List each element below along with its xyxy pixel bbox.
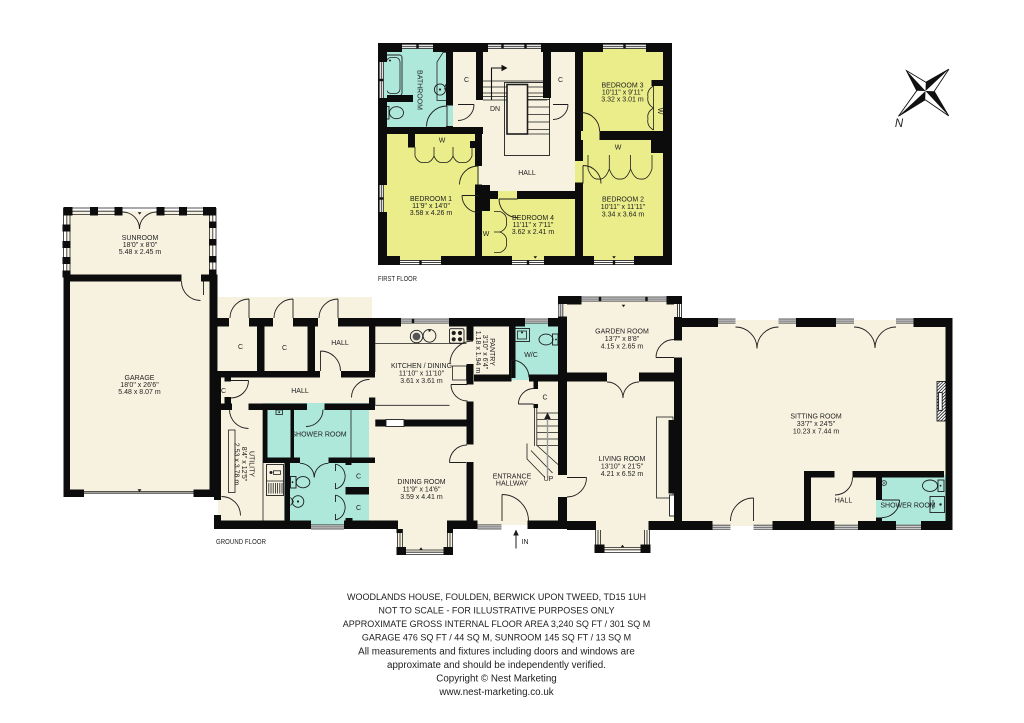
- svg-text:W: W: [656, 108, 663, 115]
- svg-text:W: W: [439, 138, 446, 145]
- svg-text:W: W: [615, 145, 622, 152]
- svg-text:GROUND FLOOR: GROUND FLOOR: [216, 537, 266, 546]
- svg-text:13'7" x 8'8": 13'7" x 8'8": [605, 336, 640, 343]
- svg-text:13'10" x 21'5": 13'10" x 21'5": [601, 464, 644, 471]
- svg-text:DN: DN: [490, 106, 500, 113]
- svg-text:W: W: [483, 231, 490, 238]
- svg-text:C: C: [464, 77, 469, 84]
- svg-text:3.34 x 3.64 m: 3.34 x 3.64 m: [602, 212, 645, 219]
- svg-text:3'10" x 6'4": 3'10" x 6'4": [481, 335, 488, 370]
- svg-text:Copyright © Nest Marketing: Copyright © Nest Marketing: [436, 674, 556, 685]
- svg-text:GARDEN ROOM: GARDEN ROOM: [595, 329, 649, 336]
- svg-text:C: C: [356, 505, 361, 512]
- svg-text:KITCHEN / DINING: KITCHEN / DINING: [391, 363, 452, 370]
- svg-text:8'4" x 12'5": 8'4" x 12'5": [240, 447, 247, 482]
- svg-text:FIRST FLOOR: FIRST FLOOR: [378, 274, 417, 283]
- svg-text:NOT TO SCALE - FOR ILLUSTRATIV: NOT TO SCALE - FOR ILLUSTRATIVE PURPOSES…: [378, 606, 614, 616]
- svg-text:SUNROOM: SUNROOM: [122, 235, 159, 242]
- svg-text:5.48 x 8.07 m: 5.48 x 8.07 m: [118, 389, 161, 396]
- svg-text:WOODLANDS HOUSE, FOULDEN, BERW: WOODLANDS HOUSE, FOULDEN, BERWICK UPON T…: [347, 592, 646, 602]
- svg-text:HALL: HALL: [518, 170, 536, 177]
- svg-text:10'11" x 9'11": 10'11" x 9'11": [602, 90, 644, 97]
- svg-text:18'0" x 8'0": 18'0" x 8'0": [123, 242, 158, 249]
- svg-text:3.59 x 4.41 m: 3.59 x 4.41 m: [400, 494, 443, 501]
- svg-text:2.53 x 3.78 m: 2.53 x 3.78 m: [233, 443, 240, 486]
- svg-text:SHOWER ROOM: SHOWER ROOM: [880, 503, 935, 510]
- svg-text:www.nest-marketing.co.uk: www.nest-marketing.co.uk: [438, 687, 553, 698]
- svg-text:3.32 x 3.01 m: 3.32 x 3.01 m: [601, 97, 644, 104]
- svg-text:LIVING ROOM: LIVING ROOM: [599, 456, 646, 463]
- svg-text:N: N: [895, 118, 904, 130]
- svg-text:SHOWER ROOM: SHOWER ROOM: [291, 432, 346, 439]
- svg-text:HALL: HALL: [291, 388, 309, 395]
- svg-text:BATHROOM: BATHROOM: [416, 70, 423, 110]
- svg-text:C: C: [221, 388, 226, 395]
- svg-text:UTILITY: UTILITY: [248, 451, 255, 477]
- svg-text:BEDROOM 4: BEDROOM 4: [512, 215, 554, 222]
- svg-text:BEDROOM 1: BEDROOM 1: [410, 196, 452, 203]
- svg-text:C: C: [282, 345, 287, 352]
- svg-text:UP: UP: [544, 476, 554, 483]
- svg-text:W/C: W/C: [524, 352, 538, 359]
- svg-text:4.21 x 6.52 m: 4.21 x 6.52 m: [601, 471, 644, 478]
- svg-text:HALL: HALL: [331, 340, 349, 347]
- svg-text:11'9" x 14'0": 11'9" x 14'0": [412, 203, 450, 210]
- svg-text:C: C: [542, 395, 547, 402]
- svg-text:approximate and should be inde: approximate and should be independently …: [387, 660, 606, 671]
- svg-text:3.62 x 2.41 m: 3.62 x 2.41 m: [512, 229, 555, 236]
- svg-text:BEDROOM 3: BEDROOM 3: [601, 83, 643, 90]
- svg-text:HALL: HALL: [835, 498, 853, 505]
- svg-text:PANTRY: PANTRY: [488, 338, 495, 366]
- svg-text:11'9" x 14'6": 11'9" x 14'6": [403, 487, 441, 494]
- svg-text:APPROXIMATE GROSS INTERNAL FLO: APPROXIMATE GROSS INTERNAL FLOOR AREA 3,…: [343, 619, 650, 629]
- svg-text:10'11" x 11'11": 10'11" x 11'11": [601, 204, 646, 211]
- svg-text:DINING ROOM: DINING ROOM: [397, 479, 445, 486]
- svg-text:11'11" x 7'11": 11'11" x 7'11": [513, 222, 554, 229]
- svg-text:3.61 x 3.61 m: 3.61 x 3.61 m: [400, 378, 443, 385]
- svg-text:SITTING ROOM: SITTING ROOM: [790, 414, 842, 421]
- svg-text:All measurements and fixtures: All measurements and fixtures including …: [358, 647, 635, 658]
- svg-text:33'7" x 24'5": 33'7" x 24'5": [797, 421, 836, 428]
- svg-text:1.18 x 1.94 m: 1.18 x 1.94 m: [474, 331, 481, 374]
- svg-text:C: C: [356, 474, 361, 481]
- svg-text:GARAGE: GARAGE: [125, 375, 155, 382]
- svg-text:HALLWAY: HALLWAY: [496, 481, 528, 488]
- svg-text:11'10" x 11'10": 11'10" x 11'10": [399, 371, 445, 378]
- svg-text:GARAGE 476 SQ FT / 44 SQ M, SU: GARAGE 476 SQ FT / 44 SQ M, SUNROOM 145 …: [362, 633, 631, 643]
- svg-text:C: C: [558, 77, 563, 84]
- svg-text:ENTRANCE: ENTRANCE: [493, 474, 532, 481]
- svg-text:C: C: [238, 344, 243, 351]
- svg-text:BEDROOM 2: BEDROOM 2: [602, 197, 644, 204]
- svg-text:4.15 x 2.65 m: 4.15 x 2.65 m: [601, 344, 644, 351]
- svg-text:10.23 x 7.44 m: 10.23 x 7.44 m: [793, 429, 839, 436]
- svg-text:3.58 x 4.26 m: 3.58 x 4.26 m: [410, 210, 453, 217]
- svg-text:18'0" x 26'6": 18'0" x 26'6": [120, 382, 159, 389]
- svg-text:IN: IN: [522, 539, 529, 546]
- svg-text:5.48 x 2.45 m: 5.48 x 2.45 m: [119, 249, 162, 256]
